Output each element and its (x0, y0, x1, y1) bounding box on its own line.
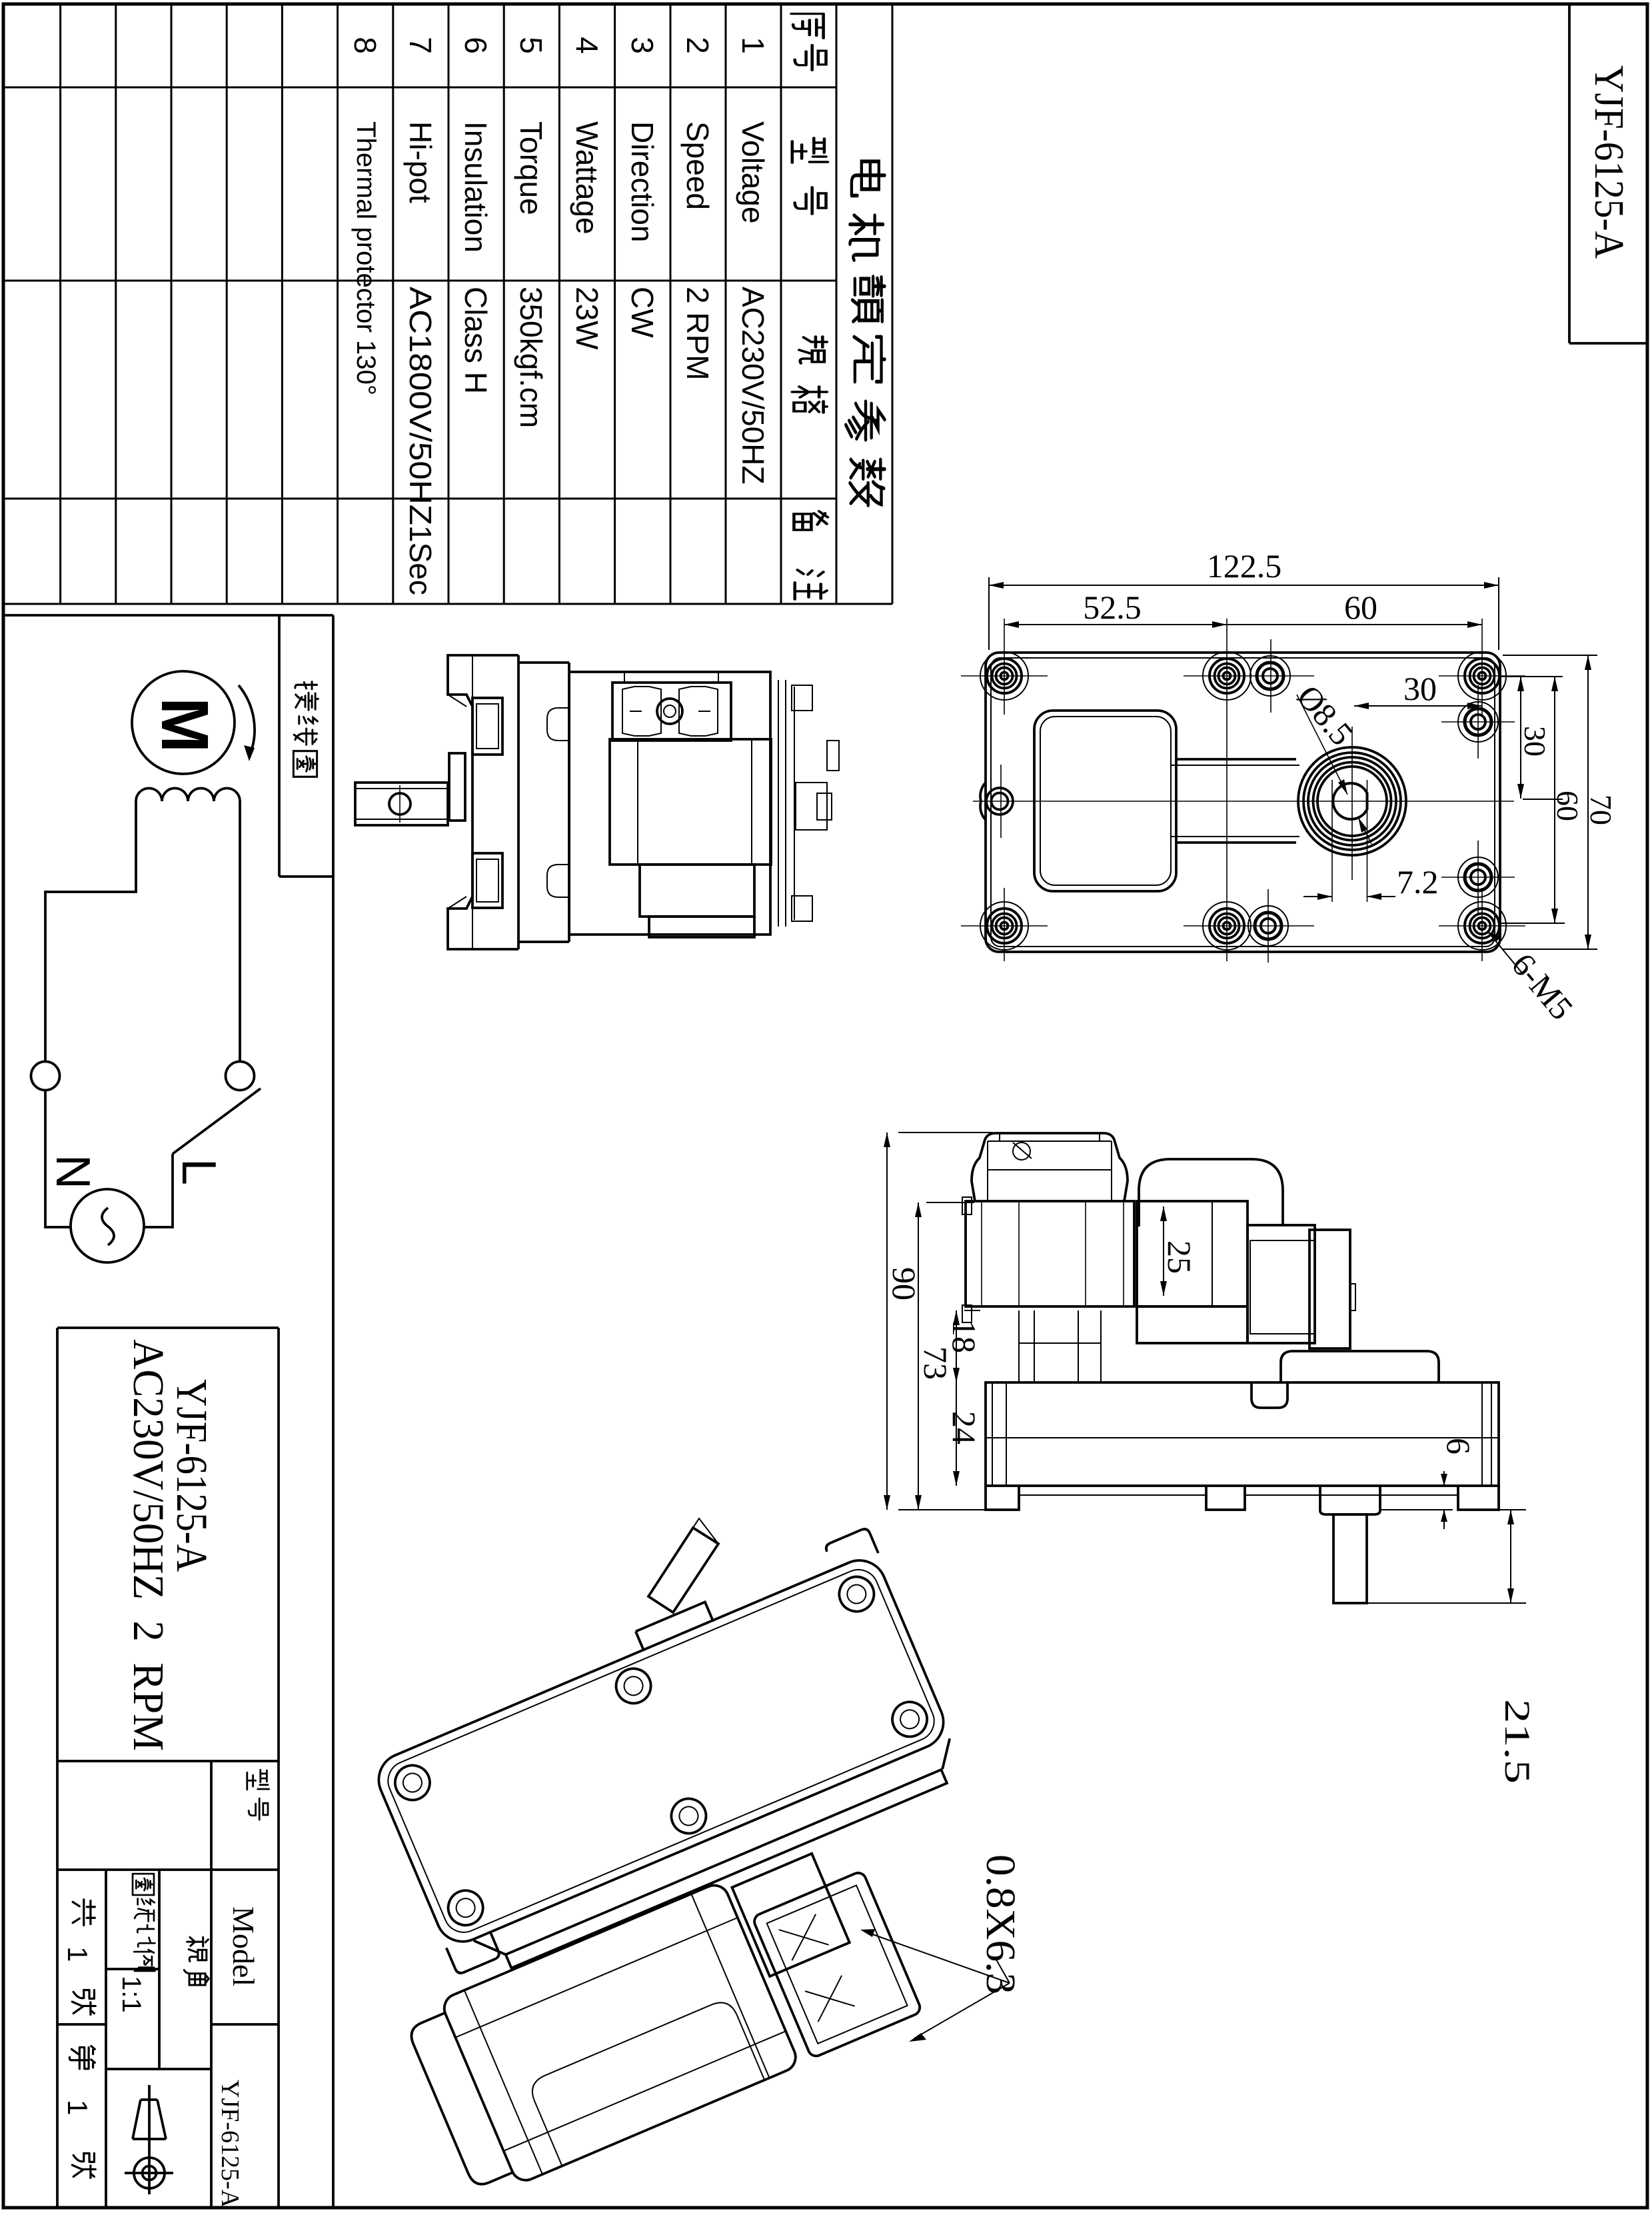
svg-text:M: M (147, 697, 222, 753)
svg-text:1Sec: 1Sec (403, 525, 438, 595)
svg-text:Torque: Torque (514, 121, 548, 215)
svg-text:7: 7 (403, 37, 438, 54)
svg-text:AC230V/50HZ: AC230V/50HZ (736, 287, 770, 485)
svg-text:30: 30 (1518, 726, 1552, 757)
svg-text:Class H: Class H (458, 287, 493, 394)
svg-text:Model: Model (227, 1906, 261, 1986)
svg-text:21.5: 21.5 (1497, 1699, 1537, 1784)
svg-text:90: 90 (886, 1267, 923, 1300)
svg-text:3: 3 (625, 37, 660, 54)
svg-text:Hi-pot: Hi-pot (403, 121, 438, 203)
svg-text:Speed: Speed (680, 121, 715, 210)
svg-text:Insulation: Insulation (458, 121, 493, 253)
svg-text:23W: 23W (570, 287, 604, 350)
svg-text:1:1: 1:1 (117, 1976, 146, 2013)
svg-text:4: 4 (570, 37, 604, 54)
svg-text:N: N (46, 1154, 99, 1189)
svg-text:Direction: Direction (625, 121, 660, 243)
svg-text:1: 1 (62, 1946, 93, 1962)
svg-text:CW: CW (625, 287, 660, 338)
svg-text:YJF-6125-A: YJF-6125-A (1586, 65, 1631, 259)
svg-text:52.5: 52.5 (1083, 589, 1142, 626)
svg-text:2 RPM: 2 RPM (680, 287, 715, 381)
svg-text:Wattage: Wattage (570, 121, 604, 235)
svg-text:122.5: 122.5 (1207, 547, 1282, 585)
svg-text:6: 6 (458, 37, 493, 54)
svg-text:25: 25 (1161, 1240, 1198, 1274)
svg-text:70: 70 (1584, 795, 1618, 825)
svg-text:7.2: 7.2 (1397, 863, 1439, 901)
svg-text:AC1800V/50HZ: AC1800V/50HZ (403, 287, 438, 525)
svg-text:8: 8 (348, 37, 383, 54)
svg-text:350kgf.cm: 350kgf.cm (514, 287, 548, 428)
svg-text:1: 1 (736, 37, 770, 54)
svg-text:YJF-6125-A: YJF-6125-A (216, 2080, 244, 2208)
svg-text:30: 30 (1403, 670, 1437, 707)
svg-text:Thermal protector 130°: Thermal protector 130° (351, 121, 381, 395)
svg-text:60: 60 (1551, 791, 1585, 821)
svg-text:0.8X6.3: 0.8X6.3 (978, 1854, 1023, 1994)
svg-text:24: 24 (946, 1411, 983, 1444)
svg-text:L: L (172, 1158, 225, 1185)
svg-text:1: 1 (62, 2100, 93, 2115)
svg-text:6: 6 (1440, 1438, 1477, 1454)
svg-text:5: 5 (514, 37, 548, 54)
svg-text:18: 18 (946, 1320, 983, 1353)
svg-text:2: 2 (680, 37, 715, 54)
svg-text:AC230V/50HZ 2 RPM: AC230V/50HZ 2 RPM (124, 1339, 173, 1751)
svg-text:Voltage: Voltage (736, 121, 770, 223)
svg-text:60: 60 (1344, 589, 1377, 626)
svg-text:YJF-6125-A: YJF-6125-A (167, 1379, 216, 1572)
